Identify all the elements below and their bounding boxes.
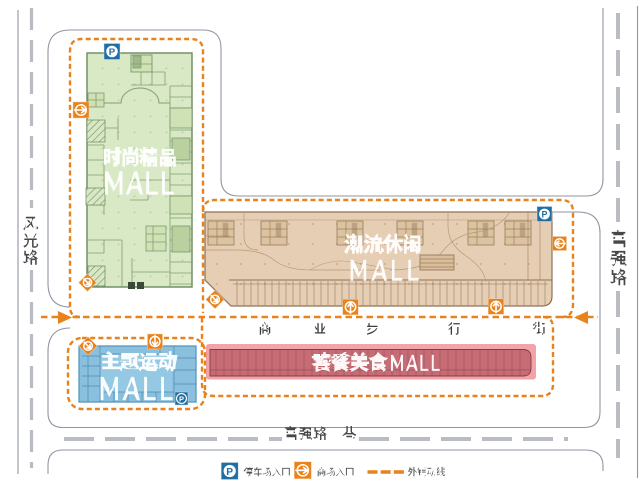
svg-text:P: P [541, 209, 547, 219]
svg-text:P: P [226, 467, 233, 478]
svg-text:P: P [109, 47, 116, 58]
svg-text:P: P [179, 394, 184, 403]
